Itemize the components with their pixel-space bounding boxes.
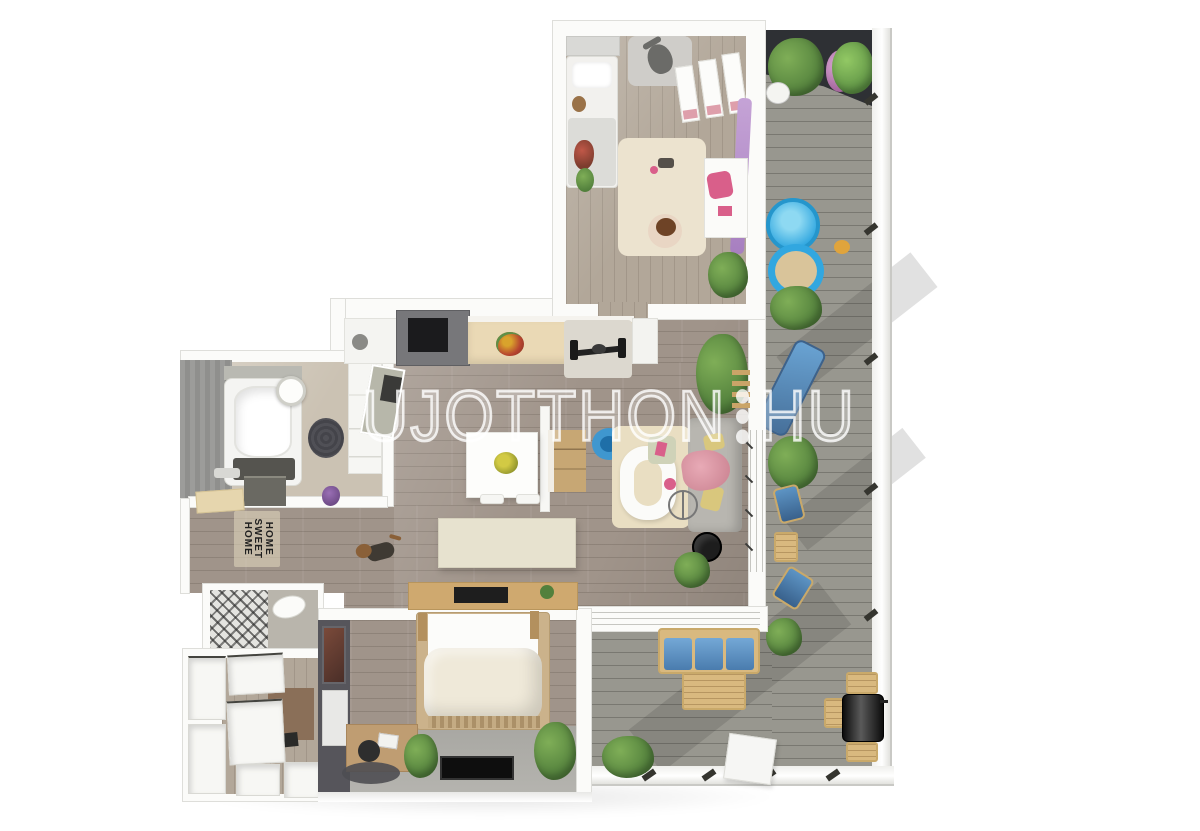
pink-cushion	[683, 109, 698, 120]
machine-weight	[570, 340, 578, 360]
tv-flat	[440, 756, 514, 780]
bed-post	[530, 611, 539, 639]
exercise-machine	[570, 332, 628, 370]
potted-tree	[768, 436, 818, 490]
child-figure	[648, 204, 684, 250]
ladder-shelf	[732, 370, 750, 408]
kids-room-plant	[708, 252, 748, 298]
living-plant	[674, 552, 710, 588]
terrace-plant	[770, 286, 822, 330]
bench-panel	[698, 59, 724, 119]
rubber-duck	[834, 240, 850, 254]
home-sweet-home-doormat: HOME SWEET HOME	[234, 511, 280, 567]
floor-plan-image: HOME SWEET HOME	[0, 0, 1200, 831]
bath-vanity	[244, 476, 286, 506]
bed-duvet	[424, 648, 542, 722]
bed-post	[418, 613, 427, 641]
bedroom-bottom-edge	[318, 792, 592, 802]
desk-toy	[718, 206, 732, 216]
glass-door-line	[584, 624, 760, 625]
wardrobe-unit	[188, 656, 226, 720]
baby-nest-inner	[634, 460, 662, 506]
machine-weight	[618, 338, 626, 358]
wc-patterned-wall	[210, 590, 268, 650]
planter-bush	[832, 42, 874, 94]
cooking-pot	[352, 334, 368, 350]
sofa-cushion-blue	[695, 638, 723, 670]
fruit-bowl	[494, 452, 518, 474]
terrace-railing-right	[872, 28, 892, 784]
sofa-cushion-blue	[664, 638, 692, 670]
terrace-plant	[602, 736, 654, 778]
laptop	[377, 733, 399, 750]
teddy-bear	[572, 96, 586, 112]
round-mirror-light	[276, 376, 306, 406]
counter-end-cabinet	[632, 318, 658, 364]
terrace-plant	[766, 618, 802, 656]
bed-foot-slats	[428, 716, 540, 728]
kids-shelf	[566, 36, 620, 56]
wall-art	[322, 626, 346, 684]
child-hair	[656, 218, 676, 236]
fruit-bowl	[496, 332, 524, 356]
grill-side-table	[824, 698, 844, 728]
pink-toy	[664, 478, 676, 490]
kids-bed-pillow	[572, 62, 612, 88]
grill-handle	[880, 700, 888, 703]
doormat-text: HOME SWEET HOME	[241, 516, 273, 562]
toy	[658, 158, 674, 168]
bedroom-round-rug	[342, 762, 400, 784]
white-plant-pot	[766, 82, 790, 104]
cooktop	[408, 318, 448, 352]
wire-side-table	[668, 490, 698, 520]
hall-left-wall	[180, 498, 190, 594]
bedroom-door-panel	[322, 690, 348, 746]
outdoor-sofa	[658, 628, 760, 674]
glass-door-line	[762, 430, 763, 572]
glass-door-line	[756, 430, 757, 572]
console-tray	[454, 587, 508, 603]
grill-side-table	[846, 672, 878, 694]
grill-side-table	[846, 742, 878, 762]
machine-seat	[592, 344, 606, 354]
barbecue-grill	[842, 694, 884, 742]
bath-faucet	[214, 468, 240, 478]
wardrobe-unit	[227, 653, 285, 696]
bedroom-right-wall	[576, 608, 592, 798]
kids-desk	[704, 158, 748, 238]
small-side-table	[774, 532, 798, 562]
cream-sideboard	[438, 518, 576, 568]
desk-chair	[358, 740, 380, 762]
glass-door-line	[584, 612, 760, 613]
kitchen-island	[548, 430, 586, 492]
wardrobe-unit	[226, 699, 285, 766]
drawer-unit	[236, 764, 280, 796]
console-plant	[540, 585, 554, 599]
pink-cushion	[706, 104, 721, 115]
toy	[650, 166, 658, 174]
glass-door-line	[584, 618, 760, 619]
bedroom-plant	[534, 722, 576, 780]
sofa-cushion-blue	[726, 638, 754, 670]
dining-chair	[516, 494, 540, 504]
kids-desk-chair	[706, 170, 734, 200]
white-planter-box	[723, 733, 777, 785]
flower-pot	[576, 168, 594, 192]
bath-round-rug	[308, 418, 344, 458]
wardrobe-unit	[188, 724, 226, 794]
bedroom-plant	[404, 734, 438, 778]
dining-chair	[480, 494, 504, 504]
entry-bench-mat	[195, 488, 244, 513]
outdoor-coffee-table	[682, 672, 746, 710]
drawer-unit	[284, 762, 320, 798]
